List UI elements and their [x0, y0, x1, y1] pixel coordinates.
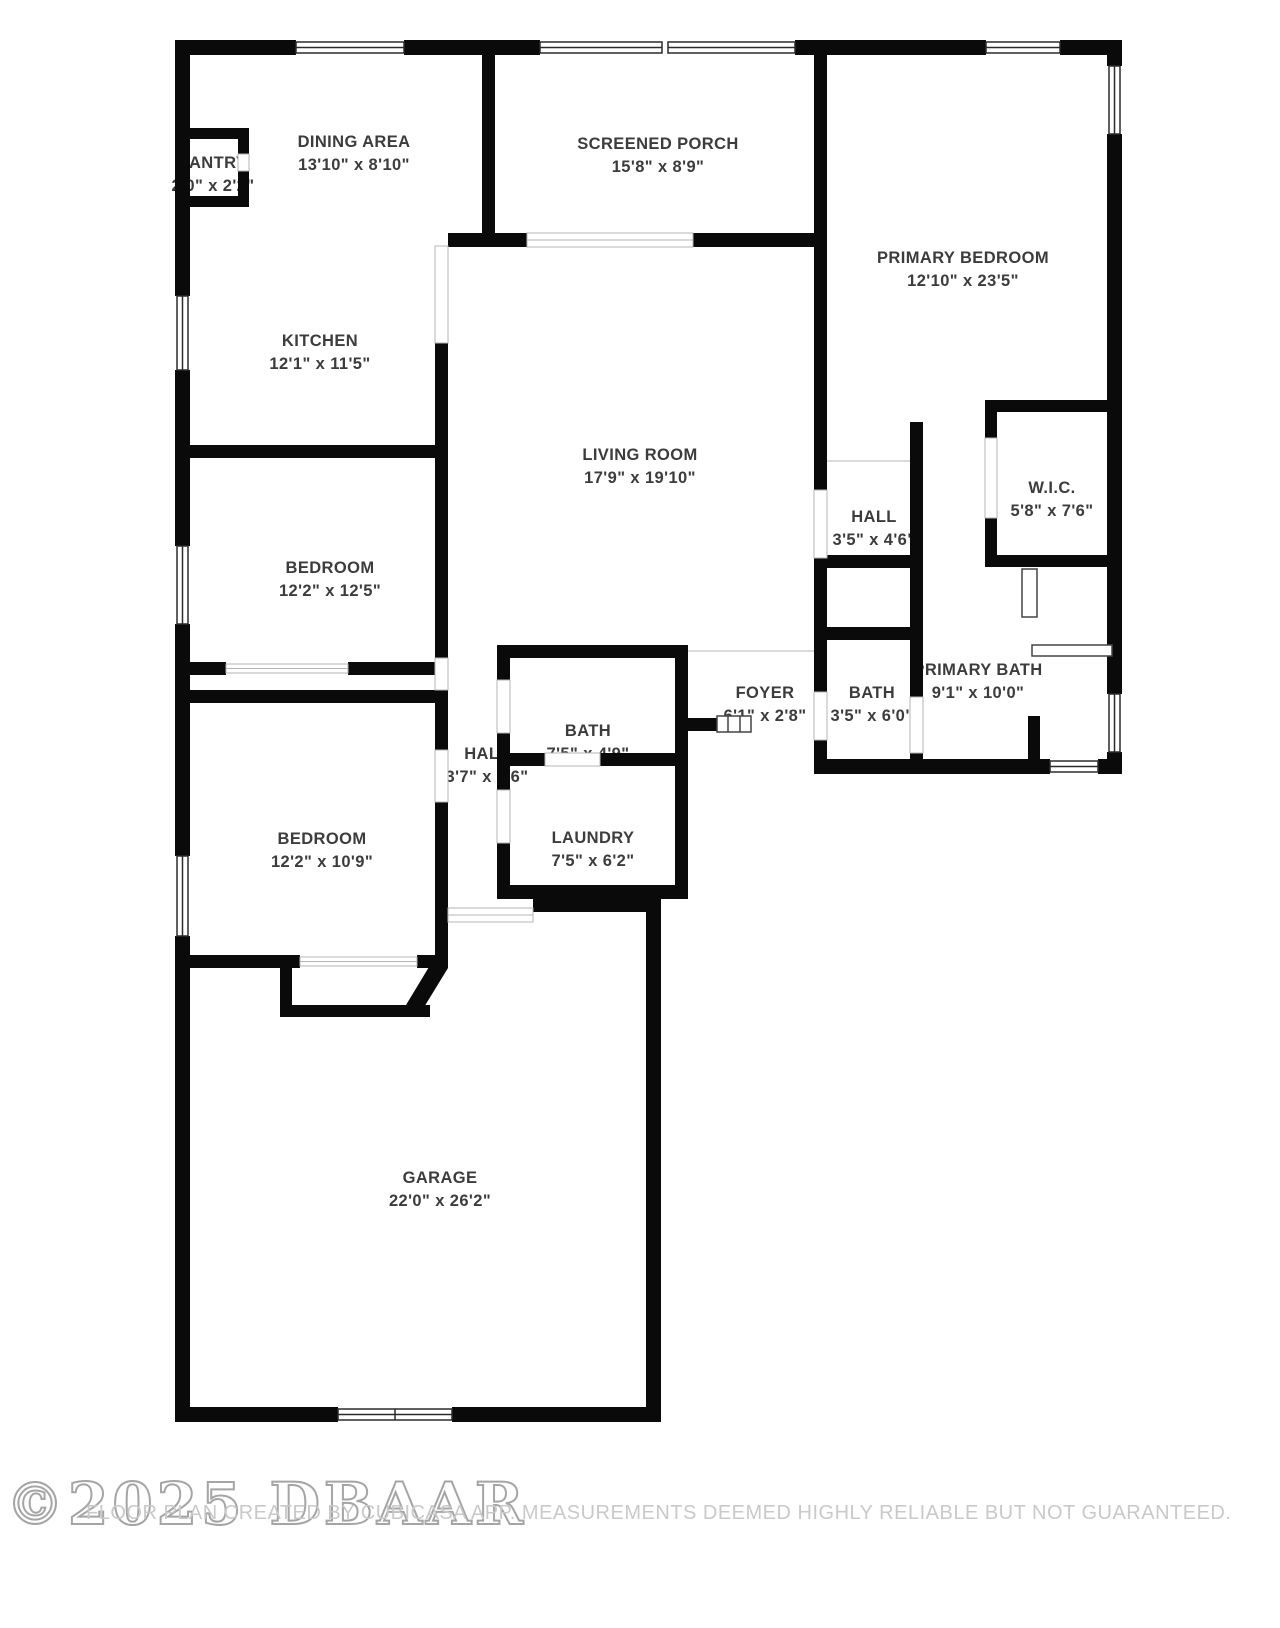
room-label-bedroom-2: BEDROOM12'2" x 10'9"	[271, 828, 373, 874]
room-name: PANTRY	[172, 152, 255, 175]
room-name: PRIMARY BATH	[913, 659, 1042, 682]
room-dims: 3'5" x 4'6"	[833, 529, 916, 552]
floor-plan-page: DINING AREA13'10" x 8'10" PANTRY2'0" x 2…	[0, 0, 1280, 1628]
room-dims: 3'5" x 6'0"	[831, 705, 914, 728]
room-dims: 6'1" x 2'8"	[724, 705, 807, 728]
room-name: BATH	[547, 720, 630, 743]
room-label-living-room: LIVING ROOM17'9" x 19'10"	[582, 444, 697, 490]
room-dims: 17'9" x 19'10"	[582, 467, 697, 490]
room-dims: 12'10" x 23'5"	[877, 270, 1049, 293]
room-dims: 15'8" x 8'9"	[577, 156, 738, 179]
room-label-bath-hall: BATH7'5" x 4'9"	[547, 720, 630, 766]
room-label-hall-primary: HALL3'5" x 4'6"	[833, 506, 916, 552]
room-name: W.I.C.	[1011, 477, 1094, 500]
disclaimer-text: FLOOR PLAN CREATED BY CUBICASA APP. MEAS…	[86, 1502, 1231, 1525]
room-name: LIVING ROOM	[582, 444, 697, 467]
room-name: KITCHEN	[269, 330, 370, 353]
room-label-laundry: LAUNDRY7'5" x 6'2"	[552, 827, 635, 873]
room-dims: 2'0" x 2'2"	[172, 175, 255, 198]
room-dims: 22'0" x 26'2"	[389, 1190, 491, 1213]
room-name: FOYER	[724, 682, 807, 705]
room-label-pantry: PANTRY2'0" x 2'2"	[172, 152, 255, 198]
room-label-primary-bath: PRIMARY BATH9'1" x 10'0"	[913, 659, 1042, 705]
room-name: GARAGE	[389, 1167, 491, 1190]
room-name: PRIMARY BEDROOM	[877, 247, 1049, 270]
room-label-screened-porch: SCREENED PORCH15'8" x 8'9"	[577, 133, 738, 179]
room-dims: 7'5" x 6'2"	[552, 850, 635, 873]
room-name: LAUNDRY	[552, 827, 635, 850]
room-label-primary-bedroom: PRIMARY BEDROOM12'10" x 23'5"	[877, 247, 1049, 293]
room-dims: 13'10" x 8'10"	[298, 154, 411, 177]
room-name: BEDROOM	[279, 557, 381, 580]
room-dims: 3'7" x 8'6"	[446, 766, 529, 789]
room-name: BEDROOM	[271, 828, 373, 851]
room-label-bath-guest: BATH3'5" x 6'0"	[831, 682, 914, 728]
room-name: SCREENED PORCH	[577, 133, 738, 156]
room-label-bedroom-1: BEDROOM12'2" x 12'5"	[279, 557, 381, 603]
room-label-foyer: FOYER6'1" x 2'8"	[724, 682, 807, 728]
room-label-kitchen: KITCHEN12'1" x 11'5"	[269, 330, 370, 376]
room-name: BATH	[831, 682, 914, 705]
room-dims: 12'2" x 12'5"	[279, 580, 381, 603]
room-dims: 5'8" x 7'6"	[1011, 500, 1094, 523]
room-label-garage: GARAGE22'0" x 26'2"	[389, 1167, 491, 1213]
room-label-dining-area: DINING AREA13'10" x 8'10"	[298, 131, 411, 177]
room-dims: 7'5" x 4'9"	[547, 743, 630, 766]
room-dims: 9'1" x 10'0"	[913, 682, 1042, 705]
room-dims: 12'2" x 10'9"	[271, 851, 373, 874]
room-labels: DINING AREA13'10" x 8'10" PANTRY2'0" x 2…	[0, 0, 1280, 1628]
room-label-hall-bedrooms: HALL3'7" x 8'6"	[446, 743, 529, 789]
room-label-wic: W.I.C.5'8" x 7'6"	[1011, 477, 1094, 523]
room-name: HALL	[833, 506, 916, 529]
room-name: HALL	[446, 743, 529, 766]
room-name: DINING AREA	[298, 131, 411, 154]
room-dims: 12'1" x 11'5"	[269, 353, 370, 376]
